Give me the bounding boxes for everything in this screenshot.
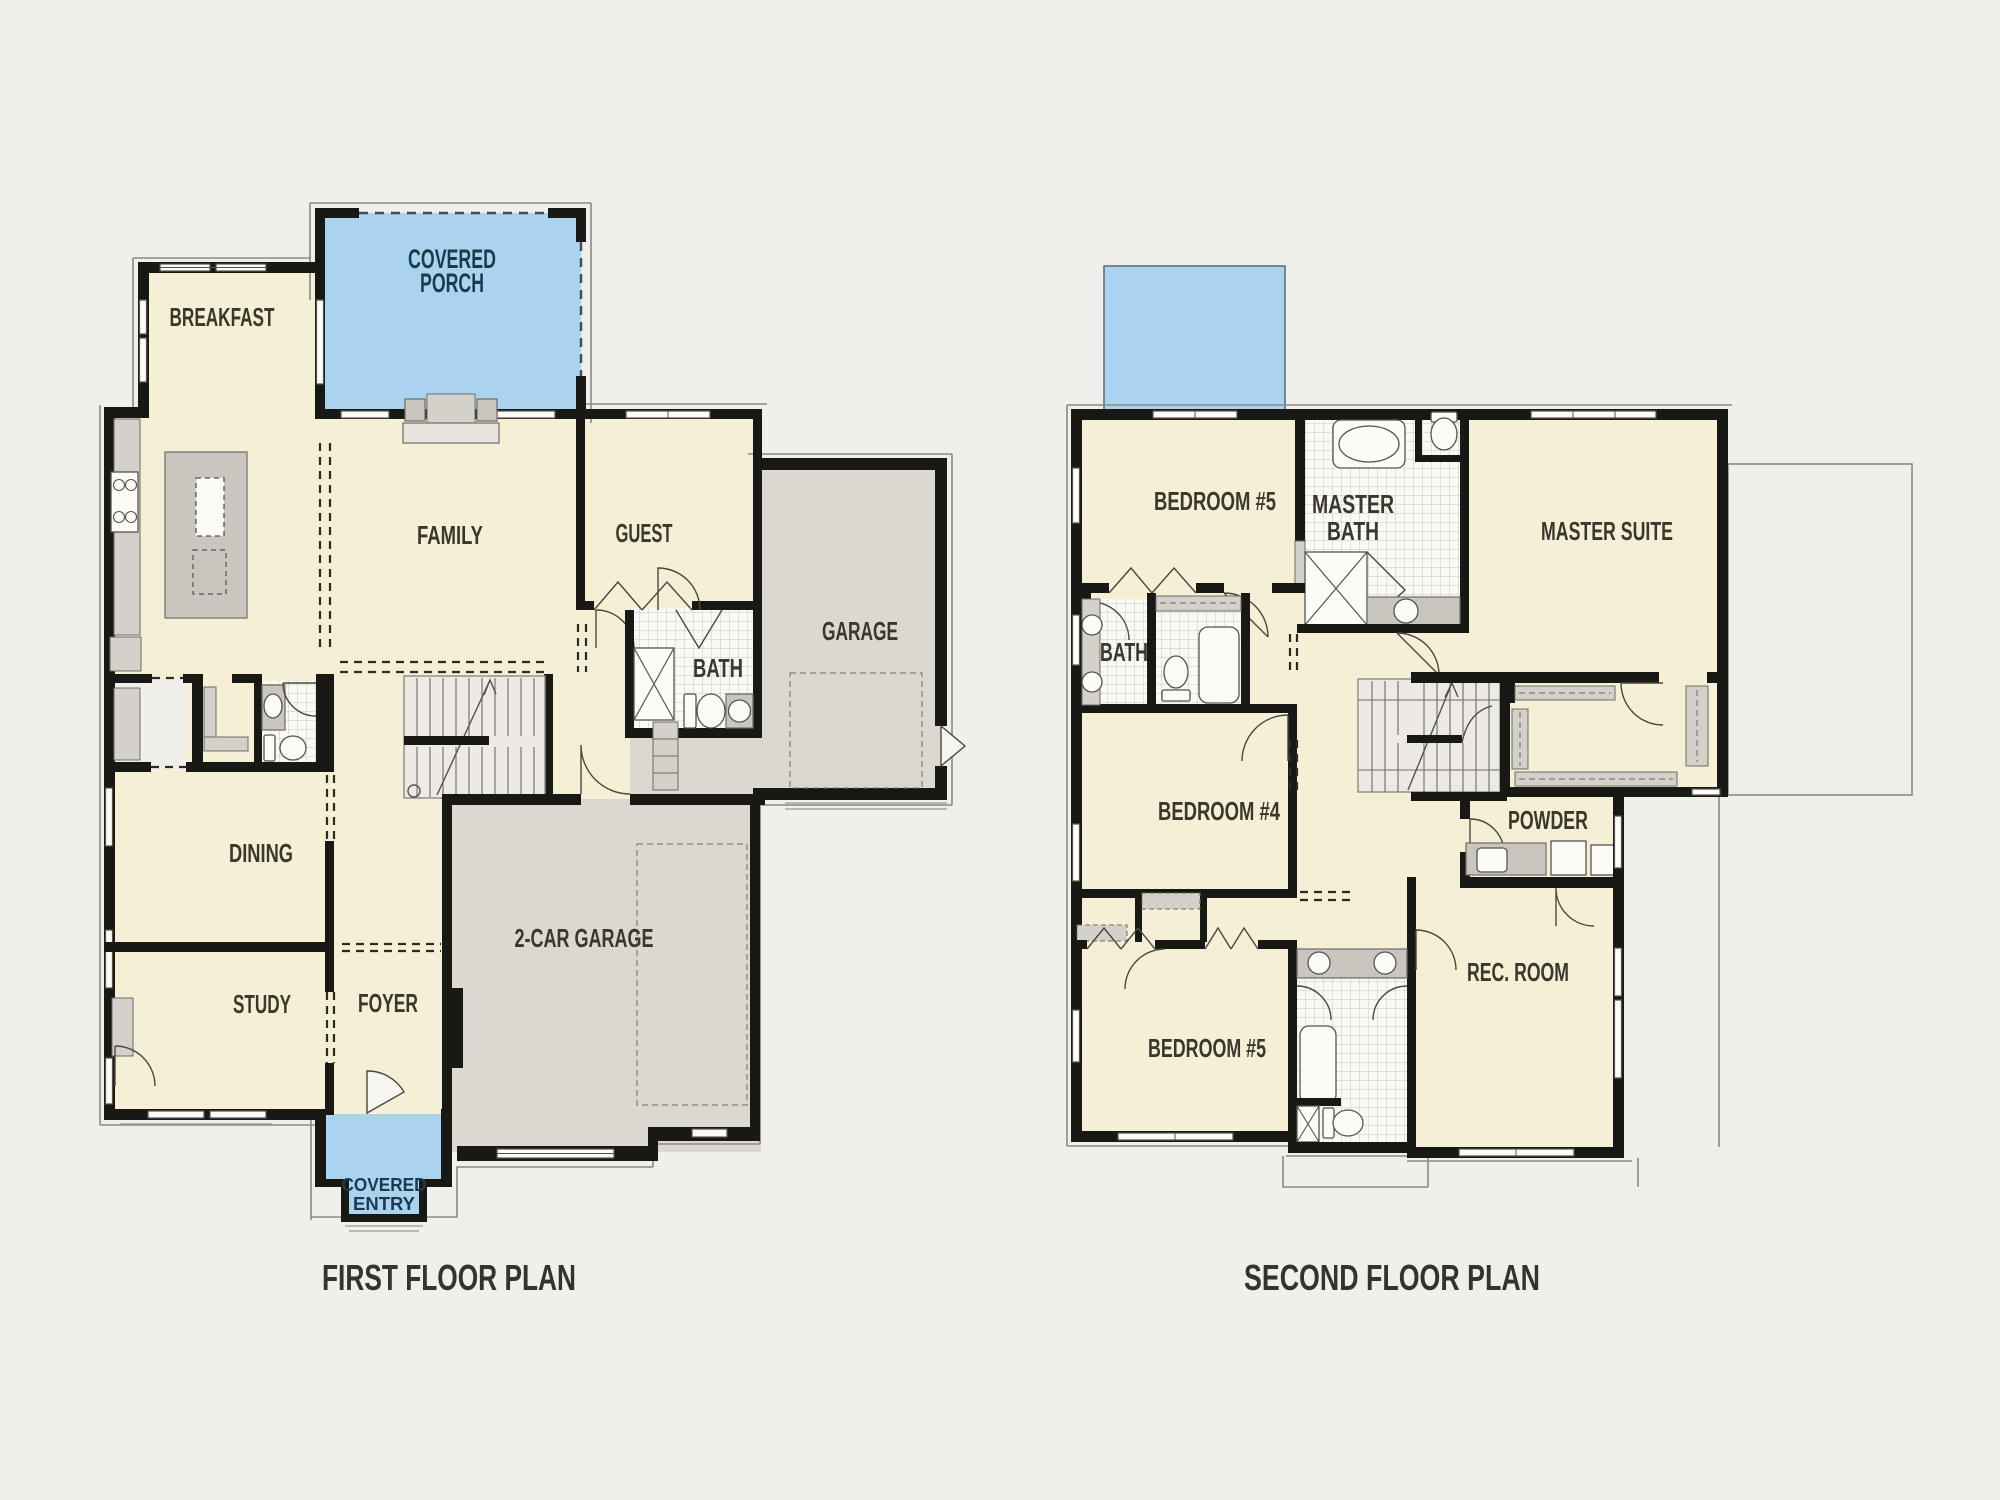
svg-text:COVERED: COVERED	[342, 1175, 427, 1195]
svg-text:2-CAR GARAGE: 2-CAR GARAGE	[515, 923, 654, 953]
svg-text:MASTER: MASTER	[1312, 489, 1394, 519]
svg-text:GARAGE: GARAGE	[822, 616, 898, 646]
svg-text:BEDROOM #4: BEDROOM #4	[1158, 796, 1280, 826]
svg-text:STUDY: STUDY	[233, 989, 291, 1019]
svg-text:BREAKFAST: BREAKFAST	[170, 302, 275, 332]
svg-text:FAMILY: FAMILY	[417, 520, 483, 550]
svg-text:ENTRY: ENTRY	[353, 1194, 415, 1214]
svg-text:SECOND FLOOR PLAN: SECOND FLOOR PLAN	[1244, 1257, 1540, 1298]
svg-text:FIRST FLOOR PLAN: FIRST FLOOR PLAN	[322, 1257, 576, 1298]
svg-text:BATH: BATH	[1327, 516, 1379, 546]
svg-text:BATH: BATH	[693, 653, 743, 683]
svg-text:REC. ROOM: REC. ROOM	[1467, 957, 1569, 987]
svg-text:POWDER: POWDER	[1508, 805, 1588, 835]
svg-text:FOYER: FOYER	[358, 988, 418, 1018]
svg-text:DINING: DINING	[229, 838, 293, 868]
svg-text:PORCH: PORCH	[420, 268, 484, 298]
svg-text:BEDROOM #5: BEDROOM #5	[1154, 486, 1276, 516]
svg-text:BEDROOM #5: BEDROOM #5	[1148, 1033, 1266, 1063]
svg-text:BATH: BATH	[1100, 637, 1148, 667]
svg-text:GUEST: GUEST	[616, 518, 673, 548]
svg-text:MASTER SUITE: MASTER SUITE	[1541, 516, 1673, 546]
